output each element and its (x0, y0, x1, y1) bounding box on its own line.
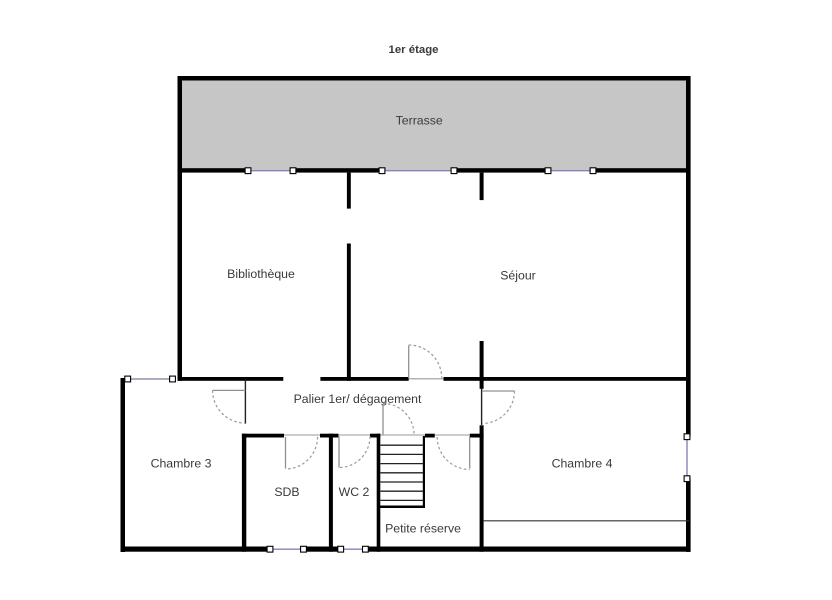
svg-text:Terrasse: Terrasse (396, 114, 443, 128)
svg-text:Petite réserve: Petite réserve (385, 522, 461, 536)
svg-text:Palier 1er/ dégagement: Palier 1er/ dégagement (294, 392, 422, 406)
svg-text:1er étage: 1er étage (388, 44, 438, 56)
svg-text:WC 2: WC 2 (339, 485, 370, 499)
svg-text:Chambre 4: Chambre 4 (552, 457, 613, 471)
svg-text:Chambre 3: Chambre 3 (151, 457, 212, 471)
svg-text:Bibliothèque: Bibliothèque (227, 267, 295, 281)
svg-text:Séjour: Séjour (500, 268, 536, 282)
svg-text:SDB: SDB (274, 485, 299, 499)
